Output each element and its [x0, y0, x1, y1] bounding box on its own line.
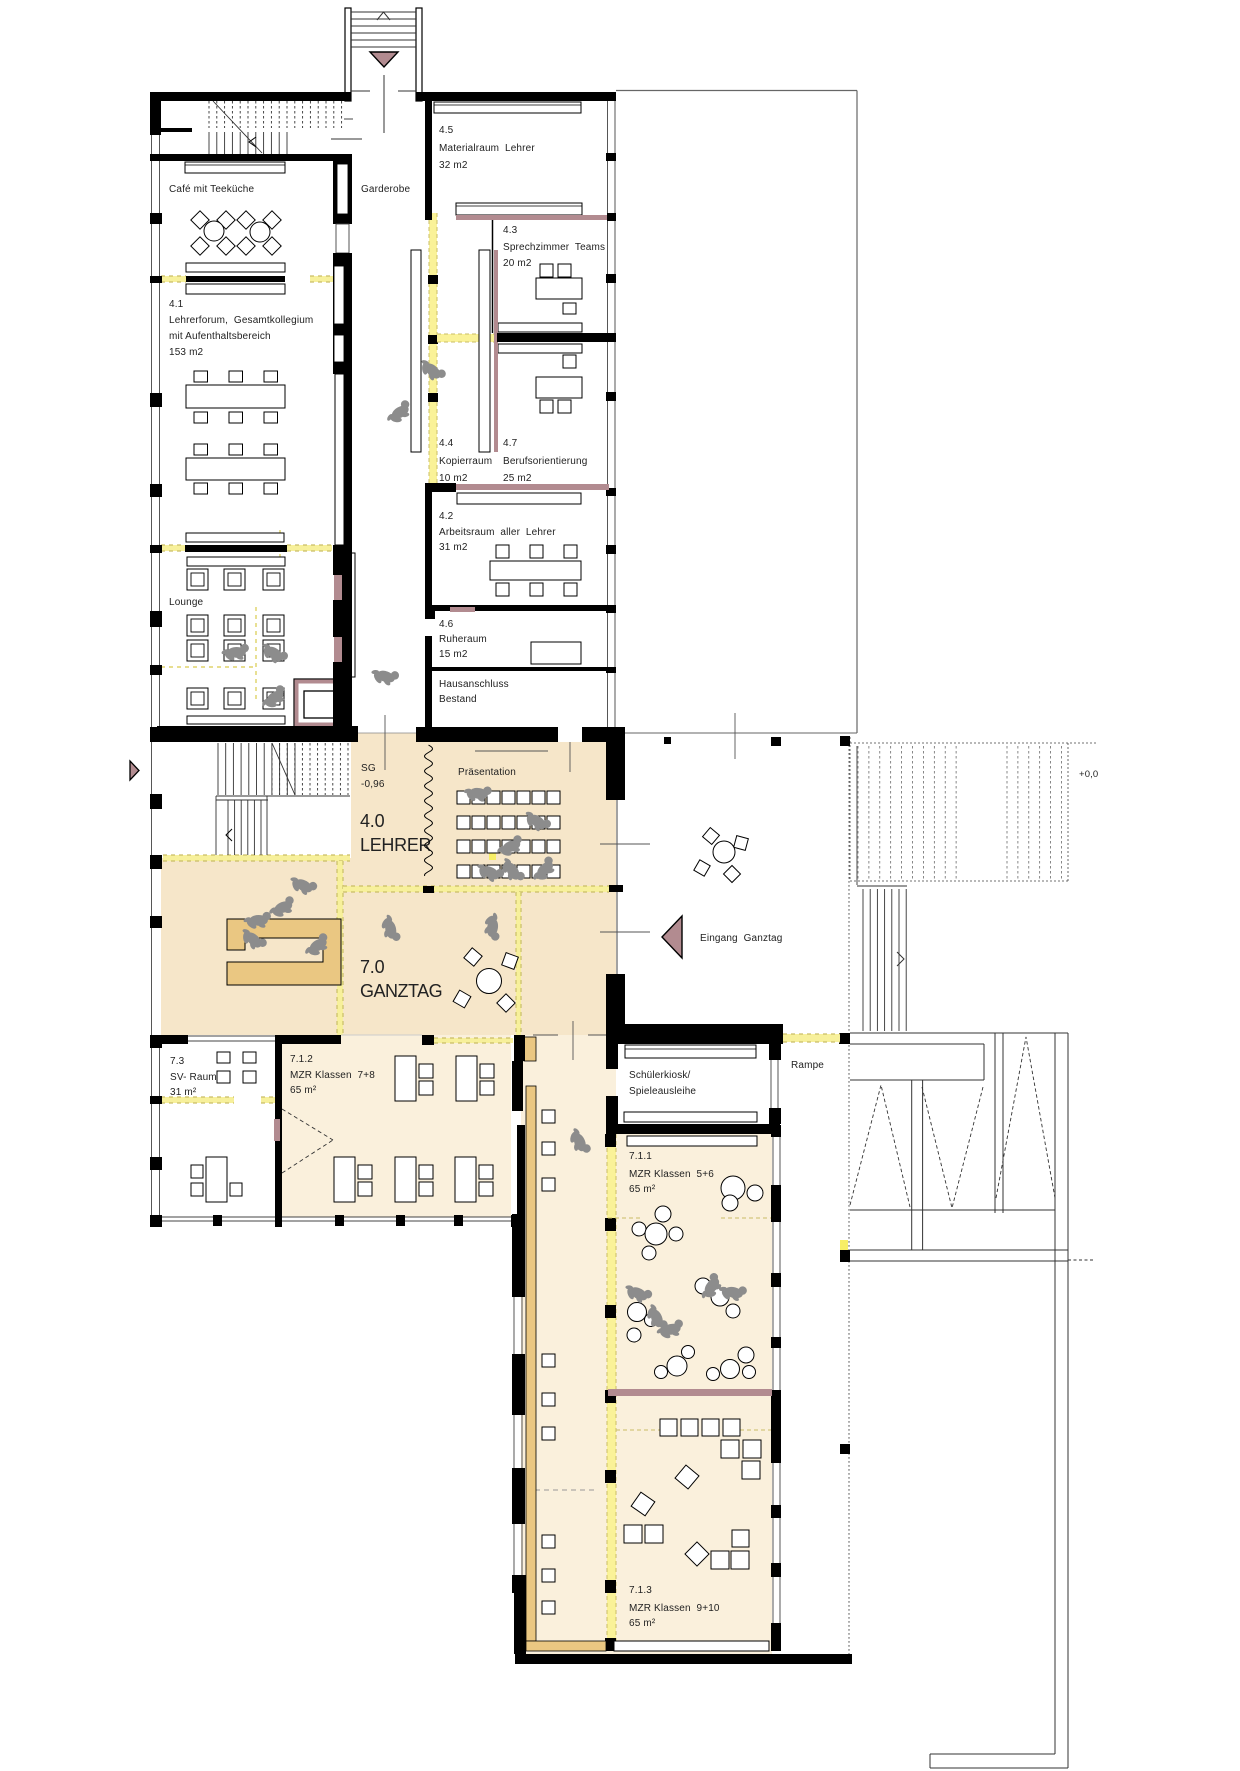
svg-text:MZR Klassen 5+6: MZR Klassen 5+6 — [629, 1169, 714, 1180]
svg-text:Hausanschluss: Hausanschluss — [439, 679, 509, 690]
svg-text:MZR Klassen 7+8: MZR Klassen 7+8 — [290, 1070, 375, 1081]
svg-text:7.1.2: 7.1.2 — [290, 1054, 313, 1065]
svg-text:4.7: 4.7 — [503, 438, 518, 449]
svg-text:4.3: 4.3 — [503, 225, 518, 236]
svg-text:SV- Raum: SV- Raum — [170, 1072, 217, 1083]
svg-text:MZR Klassen 9+10: MZR Klassen 9+10 — [629, 1603, 720, 1614]
svg-text:Berufsorientierung: Berufsorientierung — [503, 456, 587, 467]
svg-text:31 m²: 31 m² — [170, 1087, 197, 1098]
svg-text:25 m2: 25 m2 — [503, 473, 532, 484]
svg-text:Schülerkiosk/: Schülerkiosk/ — [629, 1070, 690, 1081]
svg-text:7.0: 7.0 — [360, 957, 385, 977]
svg-text:65 m²: 65 m² — [290, 1085, 317, 1096]
svg-text:Materialraum Lehrer: Materialraum Lehrer — [439, 143, 535, 154]
svg-text:Spieleausleihe: Spieleausleihe — [629, 1086, 696, 1097]
svg-text:-0,96: -0,96 — [361, 779, 385, 790]
svg-text:Café mit Teeküche: Café mit Teeküche — [169, 184, 254, 195]
svg-text:20 m2: 20 m2 — [503, 258, 532, 269]
svg-text:Kopierraum: Kopierraum — [439, 456, 492, 467]
svg-text:4.2: 4.2 — [439, 511, 454, 522]
svg-text:7.1.1: 7.1.1 — [629, 1151, 652, 1162]
svg-text:7.3: 7.3 — [170, 1056, 185, 1067]
svg-text:4.6: 4.6 — [439, 619, 454, 630]
svg-text:Rampe: Rampe — [791, 1060, 824, 1071]
svg-text:4.4: 4.4 — [439, 438, 454, 449]
svg-text:Lounge: Lounge — [169, 597, 204, 608]
svg-text:Präsentation: Präsentation — [458, 767, 516, 778]
svg-text:Arbeitsraum aller Lehrer: Arbeitsraum aller Lehrer — [439, 527, 556, 538]
svg-text:4.0: 4.0 — [360, 811, 385, 831]
svg-text:15 m2: 15 m2 — [439, 649, 468, 660]
svg-text:Lehrerforum, Gesamtkollegium: Lehrerforum, Gesamtkollegium — [169, 315, 313, 326]
svg-text:Sprechzimmer Teams: Sprechzimmer Teams — [503, 242, 605, 253]
svg-text:153 m2: 153 m2 — [169, 347, 204, 358]
svg-text:7.1.3: 7.1.3 — [629, 1585, 652, 1596]
svg-text:4.5: 4.5 — [439, 125, 454, 136]
svg-text:4.1: 4.1 — [169, 299, 184, 310]
svg-text:10 m2: 10 m2 — [439, 473, 468, 484]
svg-text:Garderobe: Garderobe — [361, 184, 410, 195]
svg-text:65 m²: 65 m² — [629, 1184, 656, 1195]
svg-text:Eingang Ganztag: Eingang Ganztag — [700, 933, 782, 944]
svg-text:+0,0: +0,0 — [1079, 769, 1098, 780]
svg-text:LEHRER: LEHRER — [360, 835, 432, 855]
svg-text:Bestand: Bestand — [439, 694, 477, 705]
svg-text:SG: SG — [361, 763, 376, 774]
svg-text:65 m²: 65 m² — [629, 1618, 656, 1629]
svg-text:Ruheraum: Ruheraum — [439, 634, 487, 645]
svg-text:mit Aufenthaltsbereich: mit Aufenthaltsbereich — [169, 331, 271, 342]
svg-text:GANZTAG: GANZTAG — [360, 981, 442, 1001]
svg-text:32 m2: 32 m2 — [439, 160, 468, 171]
svg-text:31 m2: 31 m2 — [439, 542, 468, 553]
